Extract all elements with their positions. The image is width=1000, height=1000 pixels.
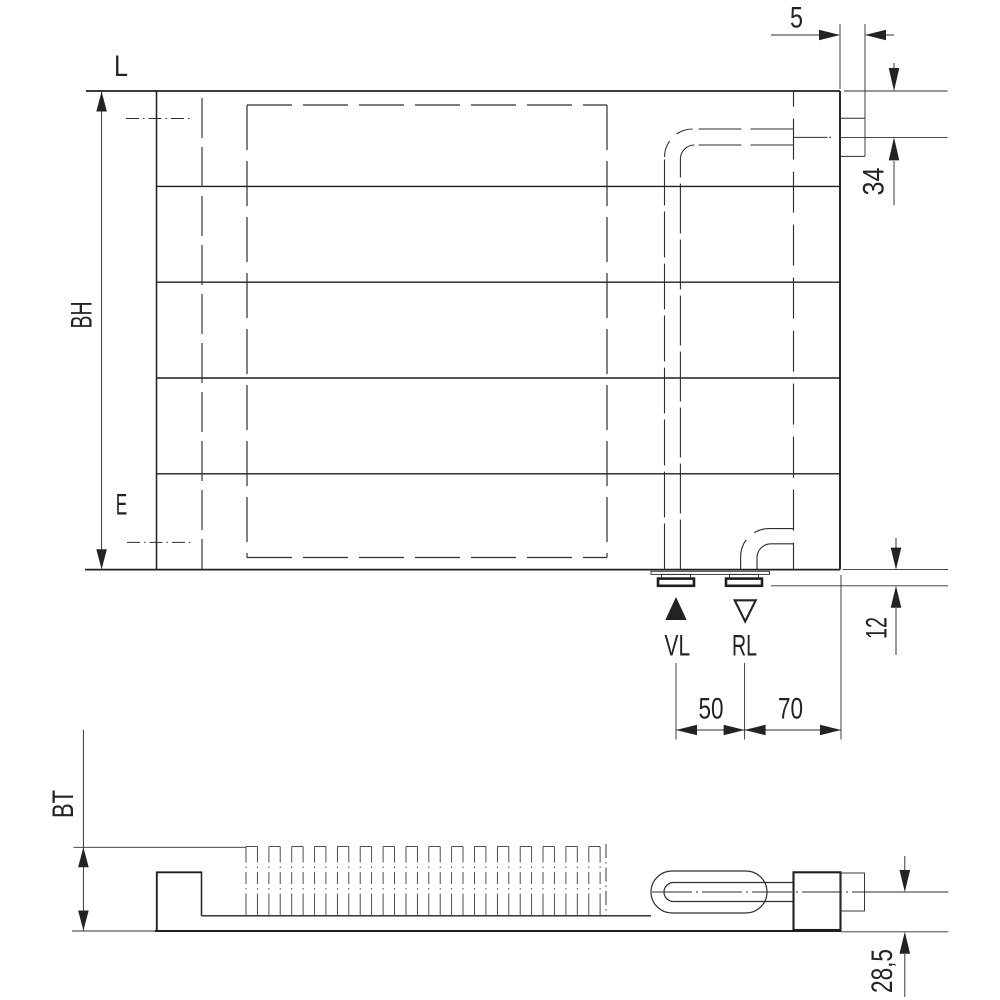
svg-text:28,5: 28,5: [866, 949, 899, 993]
svg-text:34: 34: [858, 168, 891, 196]
svg-text:RL: RL: [732, 630, 757, 663]
svg-text:50: 50: [699, 693, 724, 726]
svg-text:L: L: [114, 50, 128, 83]
svg-text:5: 5: [790, 2, 803, 35]
svg-text:E: E: [116, 489, 128, 522]
svg-text:VL: VL: [665, 630, 691, 663]
svg-text:12: 12: [860, 617, 893, 639]
svg-text:BT: BT: [47, 790, 80, 818]
svg-text:70: 70: [778, 693, 803, 726]
svg-text:BH: BH: [66, 302, 99, 329]
